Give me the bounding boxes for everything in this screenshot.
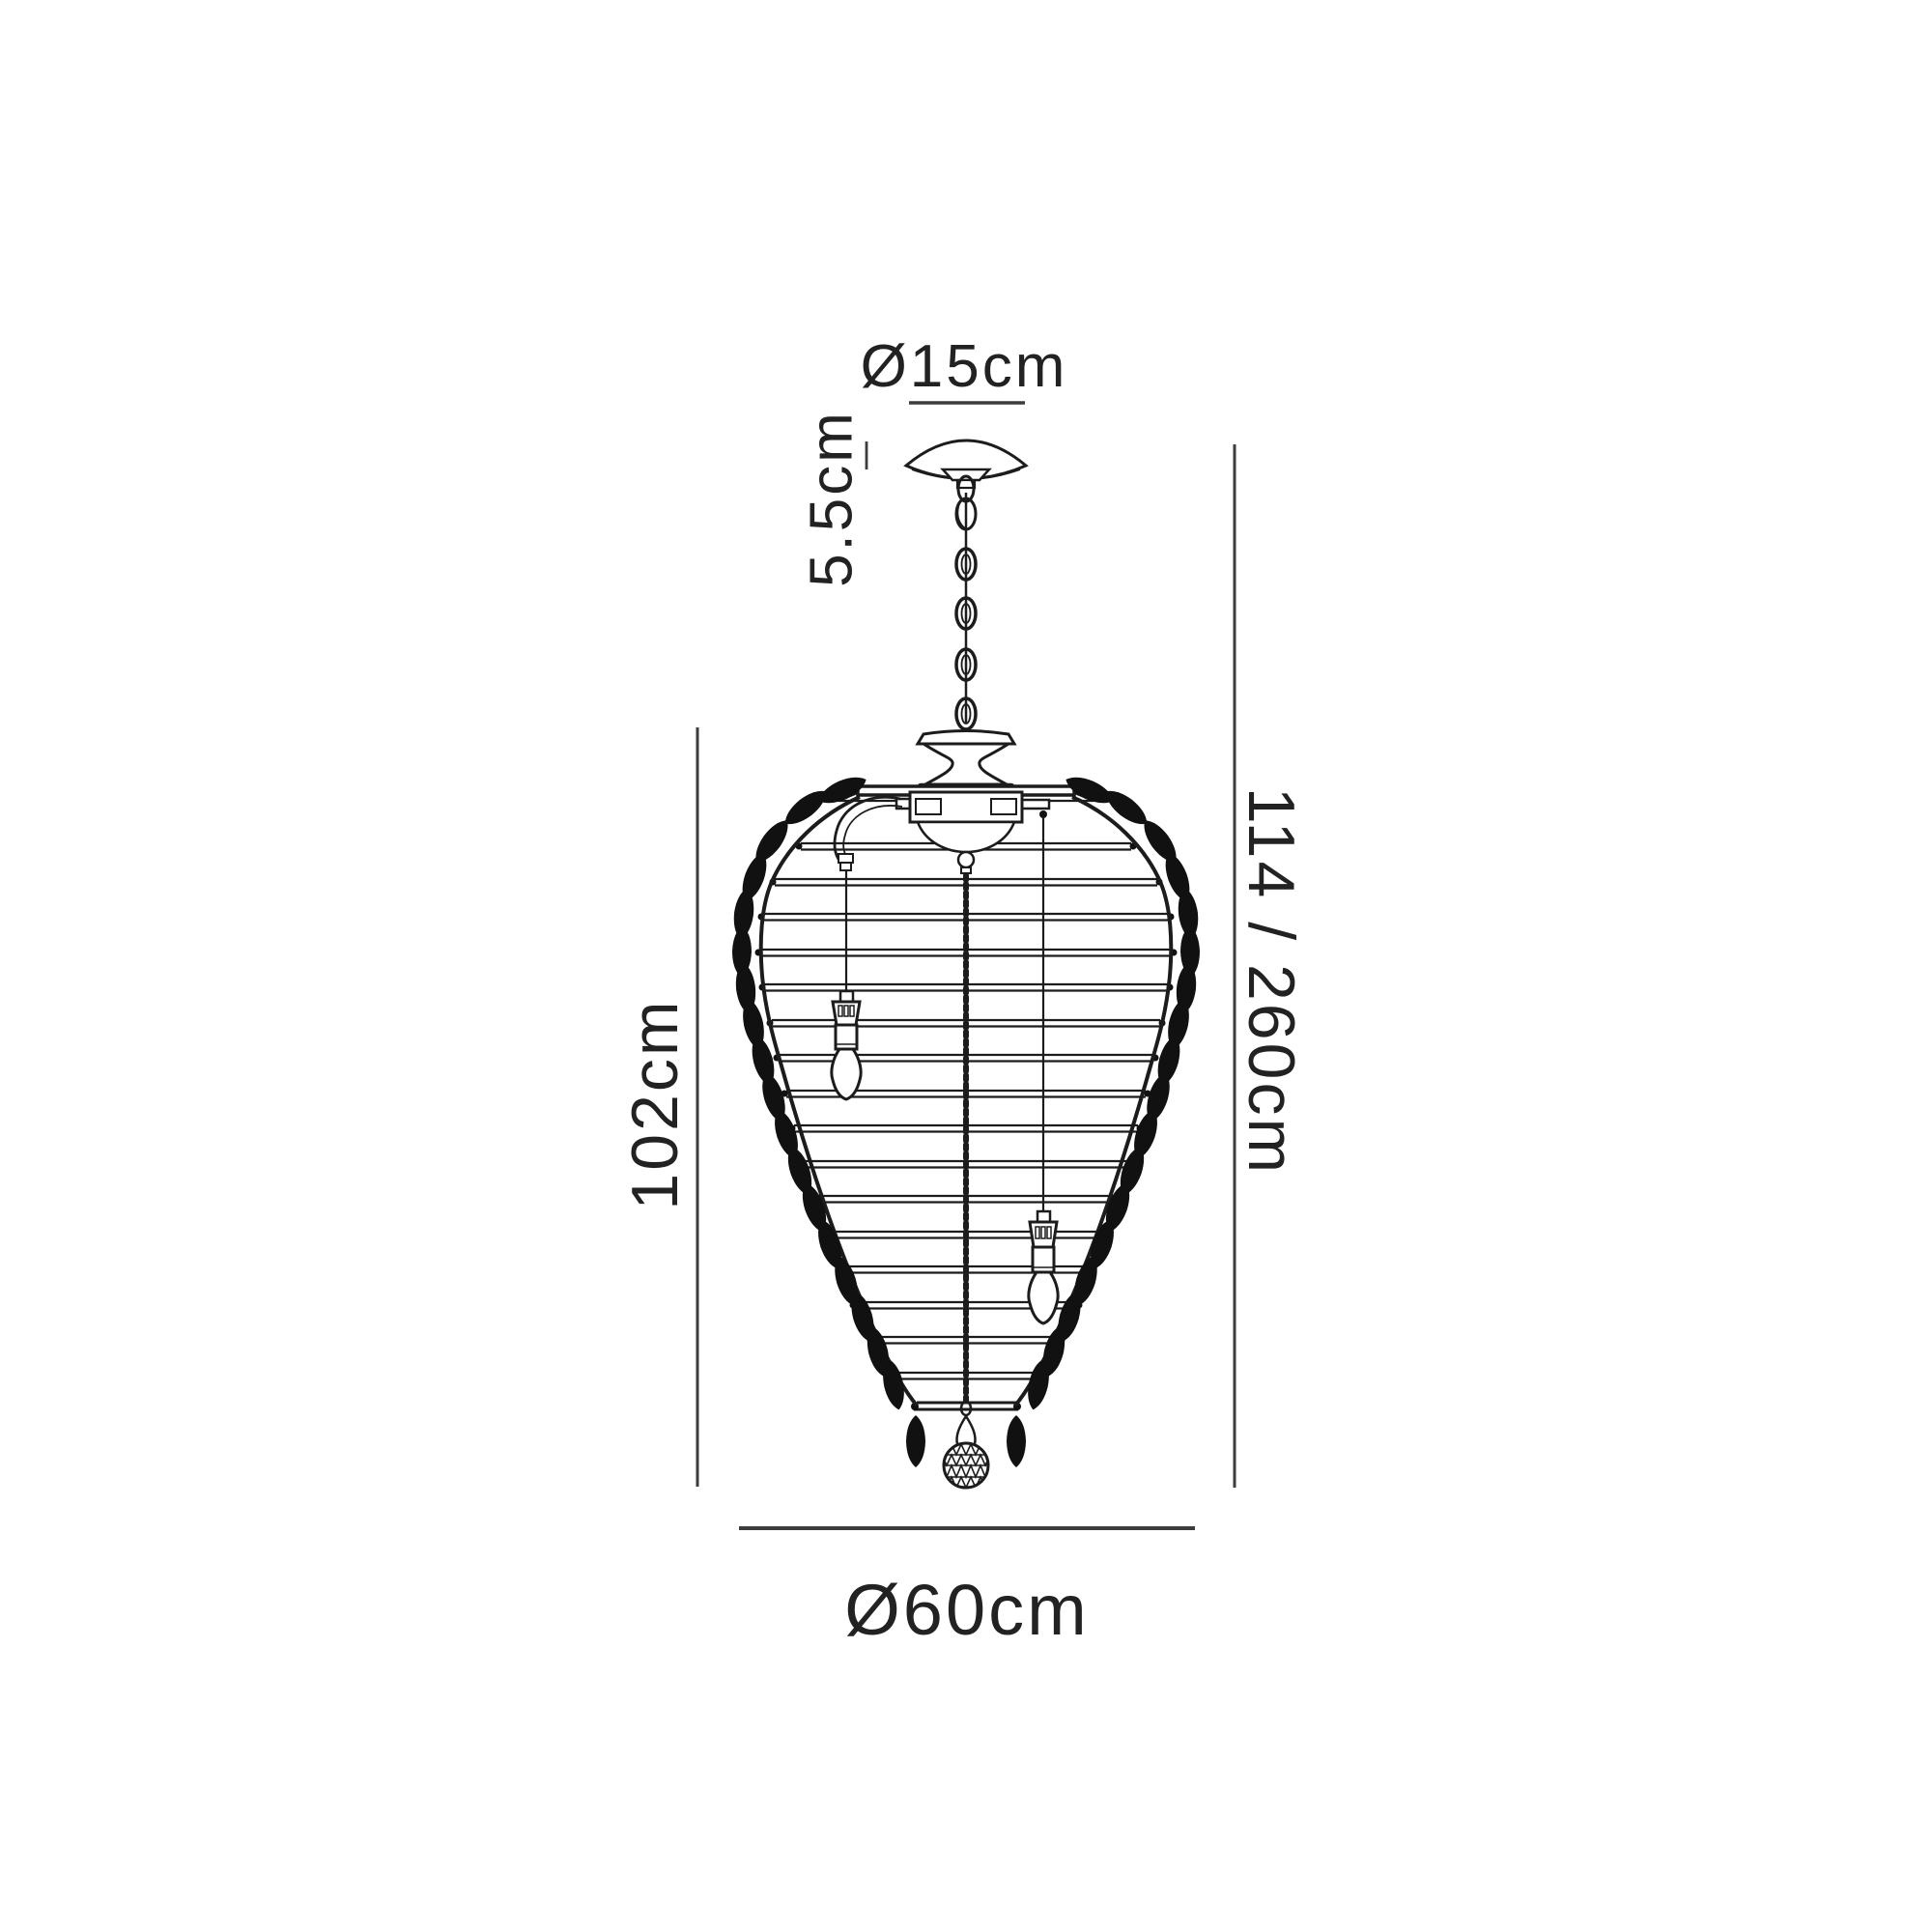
label-canopy-diameter: Ø15cm	[861, 333, 1068, 400]
spindle-top-plate	[918, 731, 1014, 745]
suspension-chain	[956, 476, 976, 729]
lamp-right	[1029, 810, 1058, 1323]
ceiling-canopy	[906, 440, 1026, 488]
diagram-canvas: Ø15cm 5.5cm 102cm 114 / 260cm Ø60cm	[0, 0, 1932, 1932]
crystal-ball	[927, 1402, 1005, 1488]
socket-cap-right	[1037, 1211, 1050, 1222]
label-body-diameter: Ø60cm	[844, 1570, 1090, 1650]
socket-tube-right	[1033, 1247, 1054, 1272]
bottom-band	[911, 1403, 1021, 1410]
inner-bowl	[918, 822, 1014, 852]
spindle-hourglass	[923, 744, 1009, 784]
socket-tube-left	[836, 1025, 857, 1049]
wire-ferrule2	[840, 863, 851, 870]
candle-bulb-right	[1029, 1272, 1058, 1323]
top-frame	[838, 786, 1094, 873]
wire-ferrule	[838, 854, 853, 863]
candle-bulb-left	[832, 1049, 861, 1099]
socket-shoulder-right	[1030, 1222, 1057, 1247]
pendant-dimension-drawing: Ø15cm 5.5cm 102cm 114 / 260cm Ø60cm	[0, 0, 1932, 1932]
spindle	[918, 731, 1014, 793]
housing-detail-right	[991, 799, 1016, 814]
label-body-height: 102cm	[618, 998, 692, 1209]
wire-loop-inner	[843, 806, 902, 861]
socket-cap-left	[840, 991, 853, 1002]
bowl-finial	[958, 852, 974, 867]
label-canopy-height: 5.5cm	[799, 410, 866, 587]
housing-detail-left	[916, 799, 941, 814]
label-overall-height: 114 / 260cm	[1235, 787, 1308, 1176]
wire-tab-right	[1022, 800, 1049, 809]
wire-anchor-right	[1039, 810, 1047, 818]
